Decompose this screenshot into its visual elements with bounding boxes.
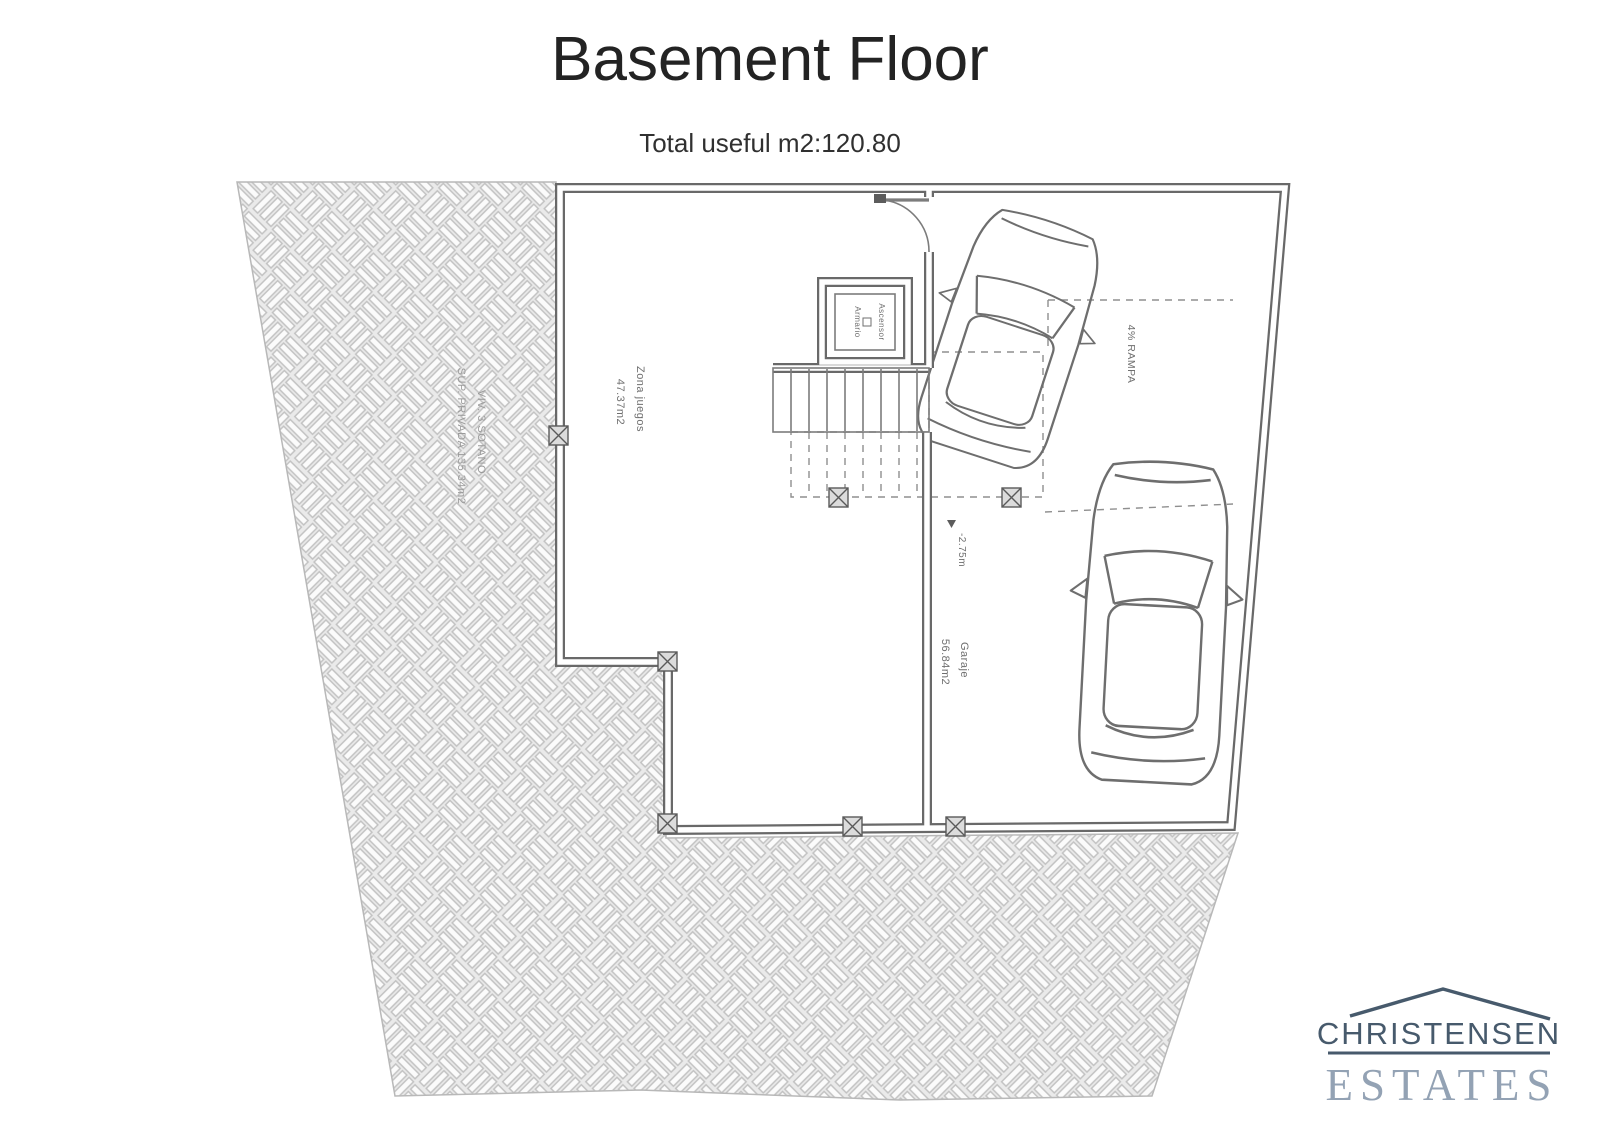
brand-logo: CHRISTENSEN ESTATES: [1296, 948, 1558, 1110]
page: Basement Floor Total useful m2:120.80: [0, 0, 1600, 1131]
garage-size-label: 56.84m2: [939, 639, 951, 685]
stair-treads: [791, 369, 917, 431]
site-hatch-area: [237, 182, 1238, 1100]
site-area-label: SUP. PRIVADA 135.34m2: [455, 368, 467, 505]
brand-type: ESTATES: [1326, 1060, 1558, 1110]
door-hinge: [874, 194, 886, 203]
elevator-label-dot: [863, 318, 871, 326]
ramp-label: 4% RAMPA: [1125, 325, 1137, 384]
elevator-label-2: Ascensor: [877, 303, 886, 340]
play-area-name-label: Zona juegos: [634, 366, 646, 432]
site-unit-label: VIV. 3 SOTANO: [475, 390, 487, 474]
garage-name-label: Garaje: [958, 642, 970, 678]
level-marker: [947, 520, 956, 528]
elevator-label-1: Armario: [853, 306, 862, 338]
play-area-size-label: 47.37m2: [614, 379, 626, 425]
brand-name: CHRISTENSEN: [1317, 1016, 1558, 1051]
roof-icon: [1350, 989, 1550, 1019]
staircase: [773, 368, 929, 432]
door-swing-arc: [884, 200, 929, 252]
level-label: -2.75m: [956, 533, 967, 567]
